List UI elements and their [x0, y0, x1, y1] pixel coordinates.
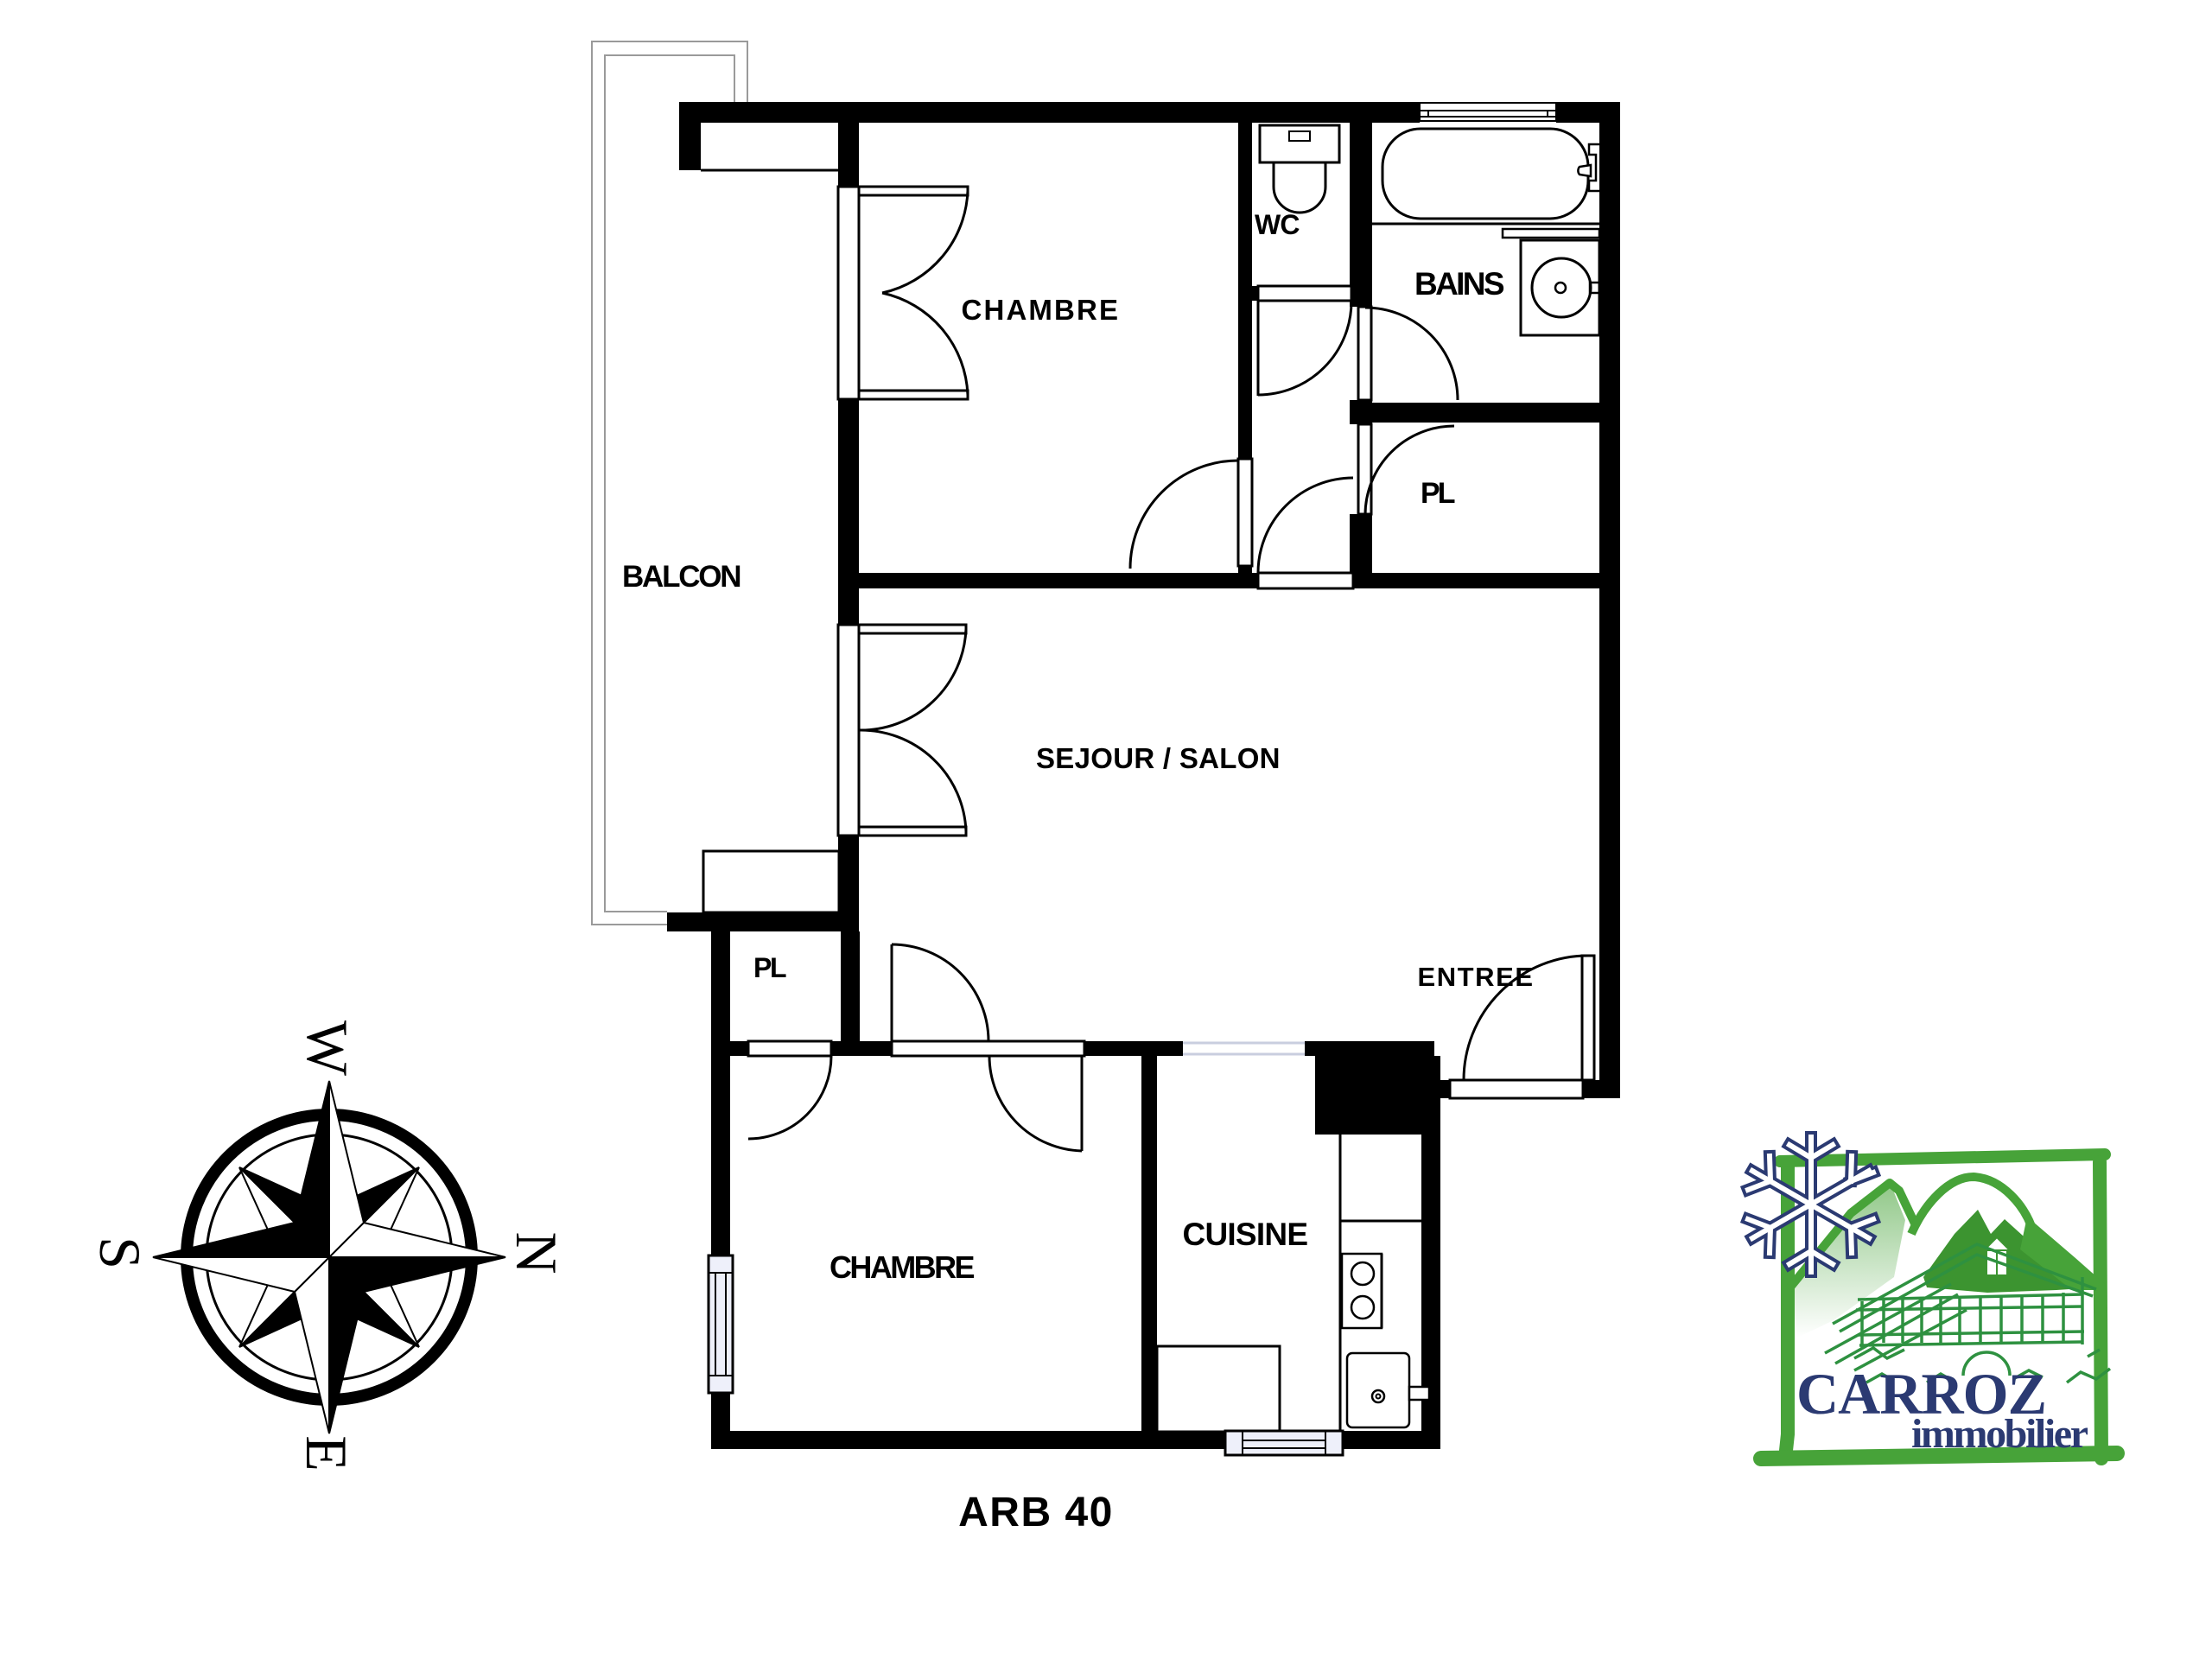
svg-text:CUISINE: CUISINE — [1183, 1217, 1310, 1252]
svg-text:ENTREE: ENTREE — [1418, 962, 1535, 992]
svg-text:CHAMBRE: CHAMBRE — [829, 1249, 976, 1285]
svg-text:immobilier: immobilier — [1911, 1411, 2088, 1457]
svg-text:WC: WC — [1255, 209, 1301, 240]
svg-text:N: N — [504, 1231, 569, 1274]
svg-text:W: W — [295, 1020, 360, 1077]
svg-text:SEJOUR / SALON: SEJOUR / SALON — [1036, 742, 1281, 774]
svg-text:E: E — [294, 1435, 359, 1471]
svg-text:PL: PL — [753, 952, 788, 983]
svg-text:ARB 40: ARB 40 — [958, 1490, 1114, 1535]
svg-text:BALCON: BALCON — [622, 560, 743, 594]
svg-text:BAINS: BAINS — [1414, 266, 1506, 302]
svg-text:S: S — [87, 1236, 153, 1269]
svg-text:CHAMBRE: CHAMBRE — [962, 294, 1120, 326]
svg-text:PL: PL — [1421, 477, 1457, 510]
